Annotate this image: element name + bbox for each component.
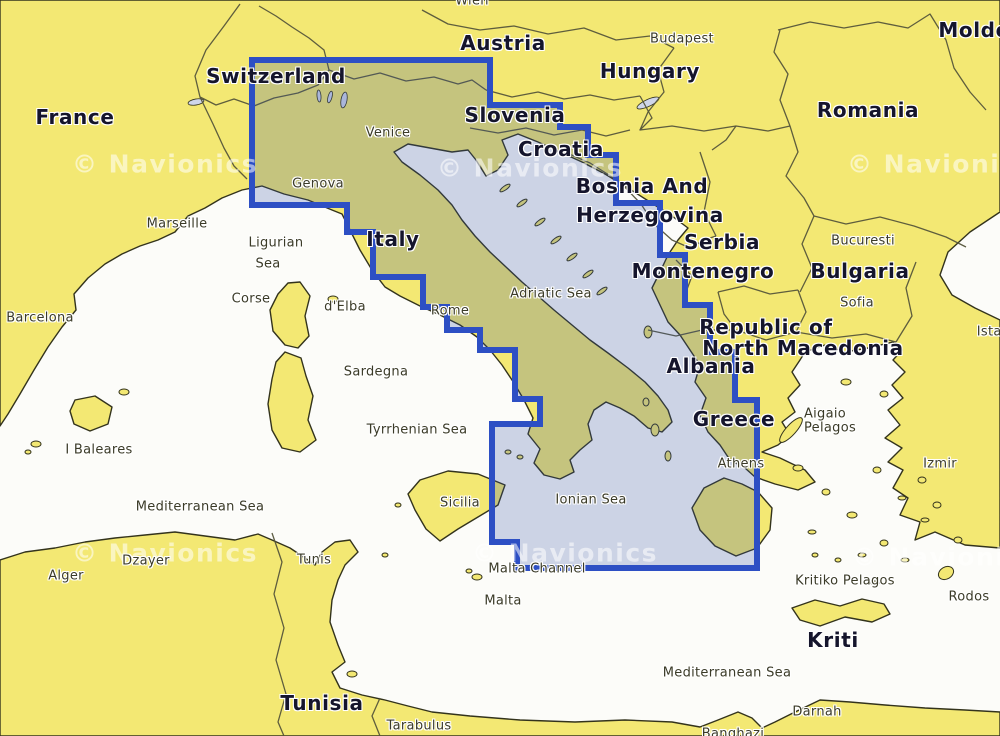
map-label-barcelona: Barcelona bbox=[6, 311, 74, 326]
map-label-malta: Malta bbox=[484, 594, 521, 609]
map-label-alger: Alger bbox=[48, 569, 84, 584]
map-label-istanbul: Istanbul bbox=[977, 325, 1000, 340]
map-label-i-baleares: I Baleares bbox=[65, 443, 132, 458]
island-sardegna bbox=[268, 352, 316, 452]
map-label-montenegro: Montenegro bbox=[632, 259, 775, 283]
map-label-herzegovina: Herzegovina bbox=[576, 203, 724, 227]
map-label-mediterranean-sea: Mediterranean Sea bbox=[136, 500, 265, 515]
map-label-serbia: Serbia bbox=[684, 230, 760, 254]
map-label-adriatic-sea: Adriatic Sea bbox=[510, 287, 592, 302]
map-label-bucuresti: Bucuresti bbox=[831, 234, 895, 249]
map-label-moldova: Moldova bbox=[938, 18, 1000, 42]
map-label-ligurian: Ligurian bbox=[249, 236, 304, 251]
map-label-rome: Rome bbox=[431, 304, 469, 319]
map-label-hungary: Hungary bbox=[600, 59, 700, 83]
island-mallorca bbox=[70, 396, 112, 431]
island-kriti bbox=[792, 599, 890, 626]
map-label-marseille: Marseille bbox=[147, 217, 208, 232]
navionics-watermark: © Navionics bbox=[847, 150, 1000, 179]
map-label-d-elba: d'Elba bbox=[324, 300, 366, 315]
map-label-kriti: Kriti bbox=[807, 628, 859, 652]
map-label-switzerland: Switzerland bbox=[206, 64, 346, 88]
map-label-sardegna: Sardegna bbox=[344, 365, 408, 380]
navionics-watermark: © Navionics bbox=[72, 150, 258, 179]
map-label-kritiko-pelagos: Kritiko Pelagos bbox=[795, 574, 895, 589]
map-label-genova: Genova bbox=[292, 177, 344, 192]
map-label-banghazi: Banghazi bbox=[702, 727, 764, 736]
map-label-romania: Romania bbox=[817, 98, 919, 122]
map-label-slovenia: Slovenia bbox=[465, 103, 566, 127]
map-label-corse: Corse bbox=[232, 292, 271, 307]
map-label-ionian-sea: Ionian Sea bbox=[555, 493, 626, 508]
map-label-sea: Sea bbox=[255, 257, 280, 272]
map-label-austria: Austria bbox=[460, 31, 546, 55]
map-label-france: France bbox=[35, 105, 114, 129]
map-label-darnah: Darnah bbox=[792, 705, 841, 720]
map-label-croatia: Croatia bbox=[518, 137, 604, 161]
map-label-bulgaria: Bulgaria bbox=[810, 259, 909, 283]
map-label-wien: Wien bbox=[455, 0, 489, 9]
map-label-venice: Venice bbox=[366, 126, 411, 141]
map-label-greece: Greece bbox=[693, 407, 775, 431]
map-label-bosnia-and: Bosnia And bbox=[576, 174, 708, 198]
map-label-mediterranean-sea: Mediterranean Sea bbox=[663, 666, 792, 681]
map-label-tunis: Tunis bbox=[297, 553, 331, 568]
map-label-aigaio: Aigaio bbox=[804, 407, 846, 422]
map-label-sofia: Sofia bbox=[840, 296, 874, 311]
map-label-tyrrhenian-sea: Tyrrhenian Sea bbox=[367, 423, 468, 438]
map-label-tarabulus: Tarabulus bbox=[387, 719, 452, 734]
map-label-tunisia: Tunisia bbox=[280, 691, 363, 715]
map-label-malta-channel: Malta Channel bbox=[488, 562, 585, 577]
map-label-rodos: Rodos bbox=[949, 590, 990, 605]
map-label-albania: Albania bbox=[667, 354, 756, 378]
map-label-italy: Italy bbox=[366, 227, 419, 251]
map-label-budapest: Budapest bbox=[650, 32, 714, 47]
island-corse bbox=[270, 282, 310, 348]
map-label-izmir: Izmir bbox=[923, 457, 957, 472]
map-viewport[interactable]: FranceSwitzerlandAustriaHungaryMoldovaRo… bbox=[0, 0, 1000, 736]
navionics-watermark: © Navionics bbox=[852, 543, 1000, 572]
map-label-dzayer: Dzayer bbox=[122, 554, 170, 569]
map-label-pelagos: Pelagos bbox=[804, 421, 856, 436]
map-label-athens: Athens bbox=[718, 457, 765, 472]
map-label-sicilia: Sicilia bbox=[440, 496, 480, 511]
